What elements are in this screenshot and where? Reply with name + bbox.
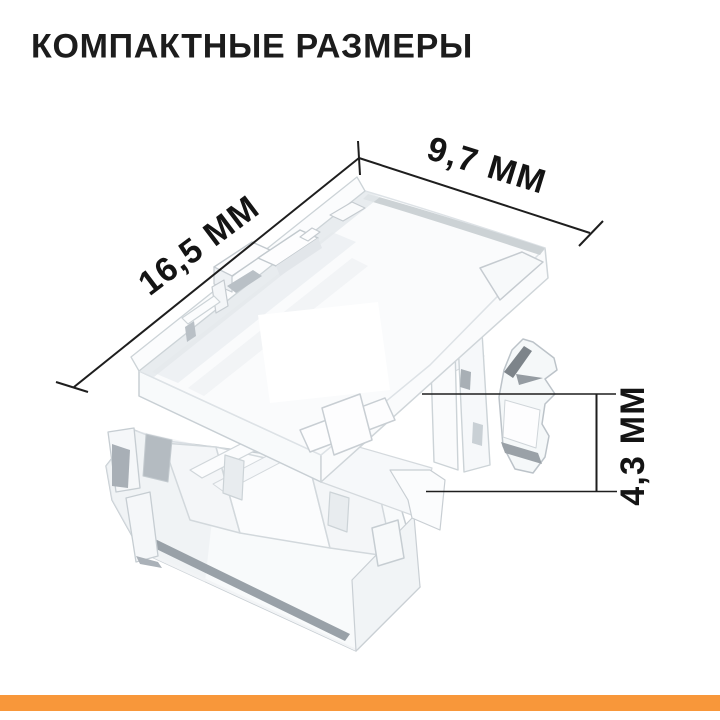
svg-text:КОМПАКТНЫЕ РАЗМЕРЫ: КОМПАКТНЫЕ РАЗМЕРЫ (31, 28, 473, 66)
svg-text:4,3 ММ: 4,3 ММ (614, 385, 652, 506)
